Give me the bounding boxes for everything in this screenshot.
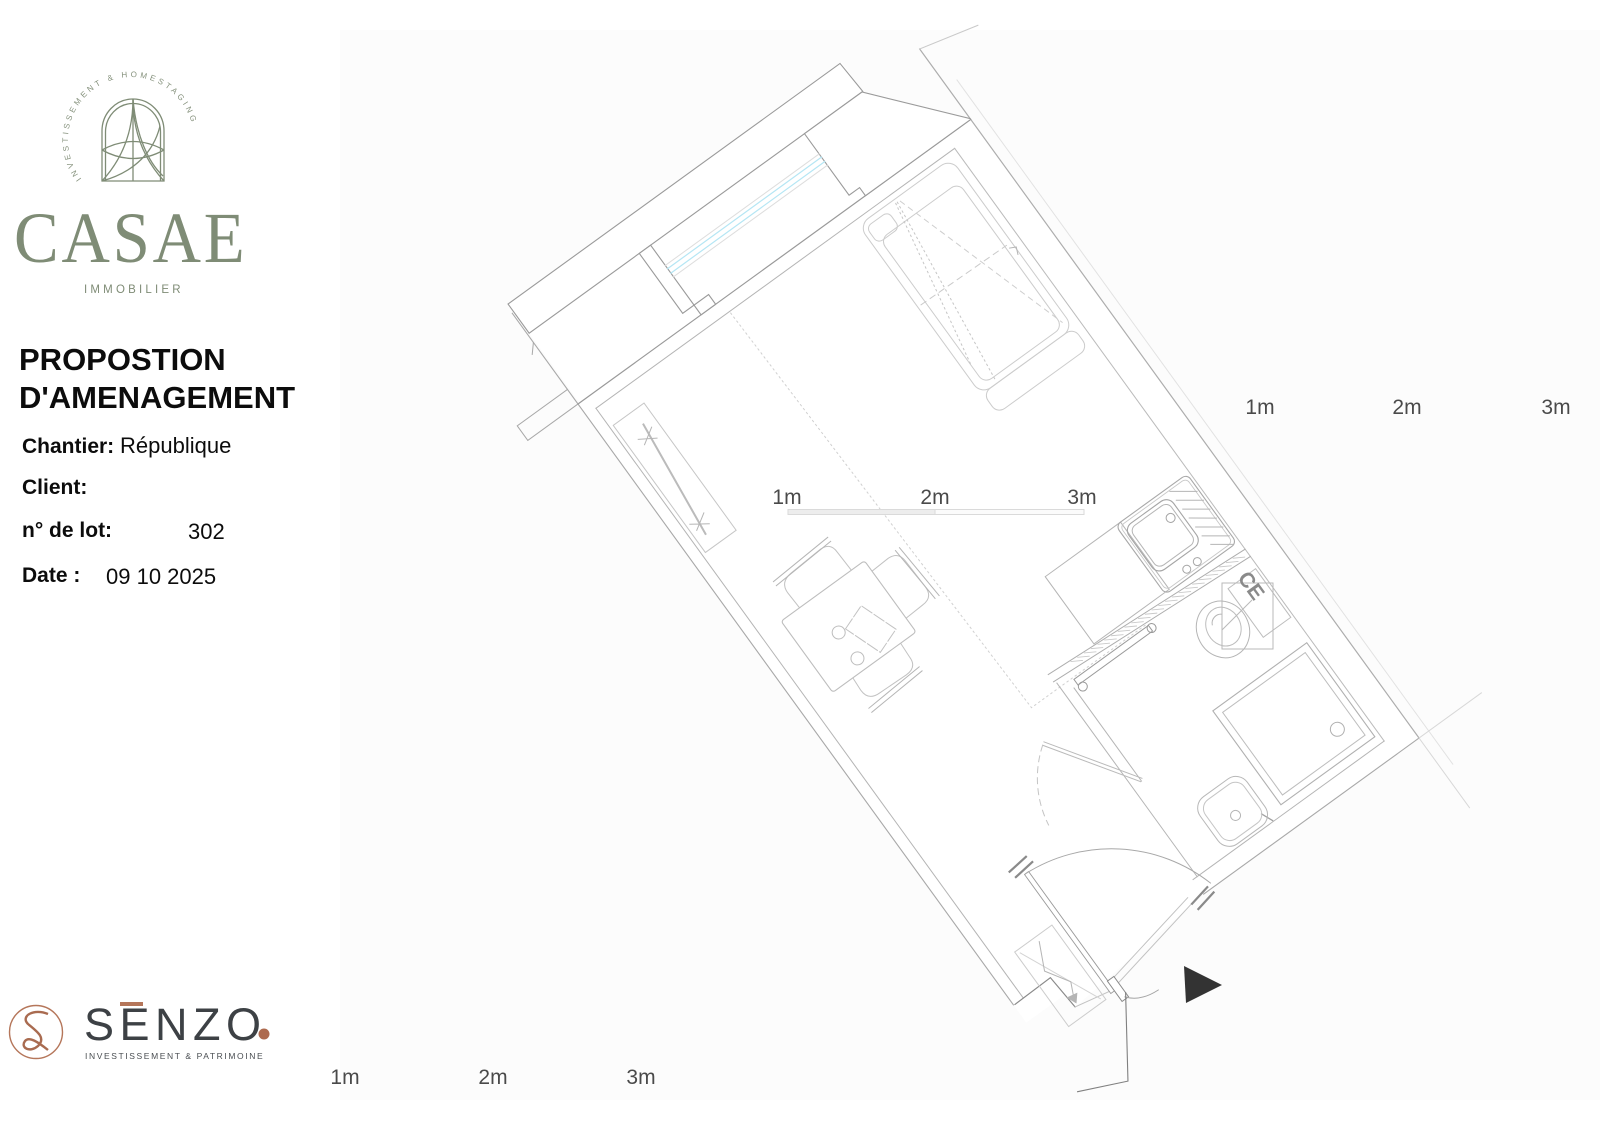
svg-text:3m: 3m [1541, 396, 1570, 419]
svg-text:3m: 3m [626, 1066, 655, 1089]
svg-text:2m: 2m [1392, 396, 1421, 419]
svg-text:3m: 3m [1067, 486, 1096, 509]
svg-text:1m: 1m [772, 486, 801, 509]
svg-text:1m: 1m [330, 1066, 359, 1089]
svg-text:2m: 2m [478, 1066, 507, 1089]
svg-text:1m: 1m [1245, 396, 1274, 419]
svg-text:2m: 2m [920, 486, 949, 509]
